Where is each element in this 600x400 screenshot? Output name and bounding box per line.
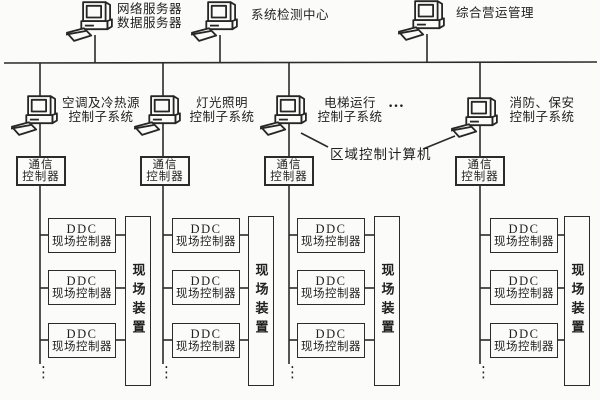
label-line: 现场控制器 bbox=[301, 341, 361, 354]
label-line: 控制子系统 bbox=[310, 111, 390, 125]
computer-icon bbox=[11, 95, 65, 137]
ddc-controller-box: DDC 现场控制器 bbox=[172, 323, 240, 358]
ddc-controller-box: DDC 现场控制器 bbox=[172, 270, 240, 305]
bus-line bbox=[4, 62, 597, 63]
label-line: 现场装置 bbox=[568, 263, 587, 339]
area-control-computer-label: 区域控制计算机 bbox=[330, 143, 432, 163]
label-line: 现场控制器 bbox=[301, 288, 361, 301]
label-line: 通信 bbox=[29, 159, 54, 172]
label-line: 灯光照明 bbox=[184, 97, 260, 111]
field-device-box: 现场装置 bbox=[374, 216, 400, 386]
comm-controller-box: 通信 控制器 bbox=[264, 156, 314, 186]
label-line: 控制器 bbox=[270, 171, 308, 184]
label-line: 控制子系统 bbox=[502, 111, 582, 125]
label-line: 综合营运管理 bbox=[456, 7, 534, 21]
label-line: 现场装置 bbox=[378, 263, 397, 339]
label-line: 现场控制器 bbox=[494, 341, 554, 354]
label-line: DDC bbox=[191, 328, 222, 341]
label-line: 通信 bbox=[153, 159, 178, 172]
computer-icon bbox=[191, 1, 245, 43]
field-device-box: 现场装置 bbox=[248, 216, 274, 386]
column-continuation-ellipsis: ⋮ bbox=[159, 368, 174, 376]
ddc-controller-box: DDC 现场控制器 bbox=[297, 218, 365, 253]
label-line: DDC bbox=[509, 328, 540, 341]
label-line: 控制器 bbox=[22, 171, 60, 184]
label-line: 控制器 bbox=[146, 171, 184, 184]
comm-controller-box: 通信 控制器 bbox=[140, 156, 190, 186]
label-line: 现场控制器 bbox=[494, 288, 554, 301]
subsystem-label-lighting: 灯光照明 控制子系统 bbox=[184, 97, 260, 124]
label-line: 控制子系统 bbox=[184, 111, 260, 125]
subsystem-label-fire-security: 消防、保安 控制子系统 bbox=[502, 97, 582, 124]
label-line: DDC bbox=[191, 275, 222, 288]
ddc-controller-box: DDC 现场控制器 bbox=[297, 270, 365, 305]
label-line: DDC bbox=[316, 328, 347, 341]
ddc-controller-box: DDC 现场控制器 bbox=[490, 270, 558, 305]
label-line: 现场控制器 bbox=[176, 236, 236, 249]
label-line: DDC bbox=[191, 223, 222, 236]
ddc-controller-box: DDC 现场控制器 bbox=[48, 270, 116, 305]
label-line: 现场控制器 bbox=[494, 236, 554, 249]
comm-controller-box: 通信 控制器 bbox=[16, 156, 66, 186]
label-line: 空调及冷热源 bbox=[60, 97, 142, 111]
label-line: 数据服务器 bbox=[117, 17, 182, 31]
field-device-box: 现场装置 bbox=[125, 216, 151, 386]
column-continuation-ellipsis: ⋮ bbox=[285, 368, 300, 376]
label-line: 控制子系统 bbox=[60, 111, 142, 125]
subsystem-label-hvac: 空调及冷热源 控制子系统 bbox=[60, 97, 142, 124]
more-subsystems-ellipsis: … bbox=[388, 94, 405, 112]
label-line: 电梯运行 bbox=[310, 97, 390, 111]
label-line: DDC bbox=[316, 223, 347, 236]
field-device-box: 现场装置 bbox=[564, 216, 590, 386]
label-line: 现场控制器 bbox=[52, 341, 112, 354]
ddc-controller-box: DDC 现场控制器 bbox=[172, 218, 240, 253]
label-line: 现场控制器 bbox=[176, 341, 236, 354]
computer-icon bbox=[260, 95, 314, 137]
label-line: DDC bbox=[67, 275, 98, 288]
label-line: 现场控制器 bbox=[52, 288, 112, 301]
label-line: 控制器 bbox=[461, 171, 499, 184]
computer-icon bbox=[66, 1, 120, 43]
label-line: 现场装置 bbox=[129, 263, 148, 339]
ddc-controller-box: DDC 现场控制器 bbox=[48, 323, 116, 358]
system-architecture-diagram: 网络服务器 数据服务器 系统检测中心 综合营运管理 空调及冷热源 控制子系统 灯… bbox=[0, 0, 600, 400]
computer-icon bbox=[134, 95, 188, 137]
label-line: DDC bbox=[509, 275, 540, 288]
label-line: DDC bbox=[67, 223, 98, 236]
label-line: 消防、保安 bbox=[502, 97, 582, 111]
label-line: 系统检测中心 bbox=[251, 9, 329, 23]
comm-controller-box: 通信 控制器 bbox=[455, 156, 505, 186]
ddc-controller-box: DDC 现场控制器 bbox=[297, 323, 365, 358]
top-node-label-monitoring: 系统检测中心 bbox=[251, 9, 329, 23]
label-line: 现场装置 bbox=[252, 263, 271, 339]
top-node-label-operations: 综合营运管理 bbox=[456, 7, 534, 21]
ddc-controller-box: DDC 现场控制器 bbox=[490, 323, 558, 358]
subsystem-label-elevator: 电梯运行 控制子系统 bbox=[310, 97, 390, 124]
computer-icon bbox=[451, 97, 505, 139]
label-line: 通信 bbox=[277, 159, 302, 172]
label-line: DDC bbox=[67, 328, 98, 341]
label-line: 网络服务器 bbox=[117, 3, 182, 17]
ddc-controller-box: DDC 现场控制器 bbox=[490, 218, 558, 253]
label-line: 现场控制器 bbox=[52, 236, 112, 249]
label-line: DDC bbox=[316, 275, 347, 288]
ddc-controller-box: DDC 现场控制器 bbox=[48, 218, 116, 253]
label-line: 通信 bbox=[468, 159, 493, 172]
column-continuation-ellipsis: ⋮ bbox=[36, 368, 51, 376]
label-line: DDC bbox=[509, 223, 540, 236]
label-line: 现场控制器 bbox=[176, 288, 236, 301]
computer-icon bbox=[398, 0, 452, 42]
label-line: 现场控制器 bbox=[301, 236, 361, 249]
column-continuation-ellipsis: ⋮ bbox=[476, 368, 491, 376]
top-node-label-servers: 网络服务器 数据服务器 bbox=[117, 3, 182, 30]
